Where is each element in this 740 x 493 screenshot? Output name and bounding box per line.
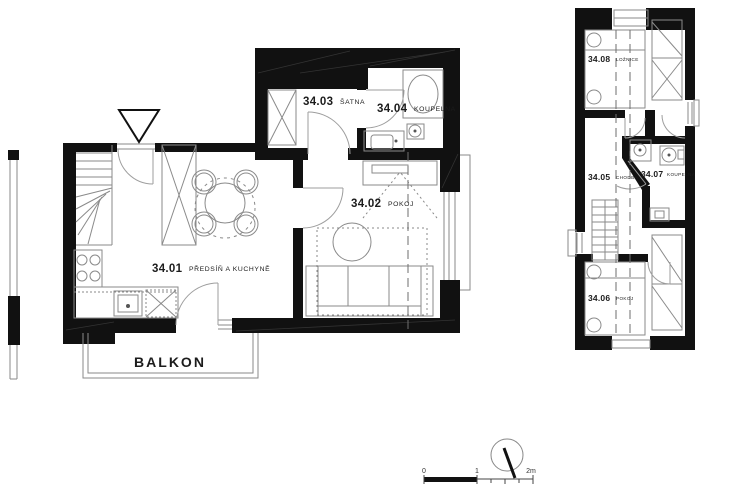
entrance-door [118, 149, 153, 184]
room-number-34-01: 34.01 [152, 263, 183, 275]
floor-plan-drawing: 34.01 PŘEDSÍŇ A KUCHYNĚ 34.02 POKOJ 34.0… [0, 0, 740, 493]
room-name-34-08: LOŽNICE [616, 55, 639, 62]
triangle-section-marker-icon [119, 110, 159, 142]
pouf [333, 223, 371, 261]
toilet-07 [650, 208, 669, 221]
room-name-34-06: POKOJ [616, 296, 634, 301]
room-number-34-03: 34.03 [303, 96, 333, 108]
room-name-34-05: CHODBA [616, 175, 639, 180]
window-left [568, 230, 576, 256]
wardrobe-pokoj [652, 235, 682, 330]
room-number-34-02: 34.02 [351, 198, 381, 210]
ground-walls [8, 48, 460, 345]
scale-tick-1: 1 [475, 468, 479, 475]
room-name-34-03: ŠATNA [340, 97, 365, 106]
niche-arc [662, 115, 685, 138]
ground-floor-plan: 34.01 PŘEDSÍŇ A KUCHYNĚ 34.02 POKOJ 34.0… [8, 48, 470, 379]
balcony-door [176, 283, 218, 325]
door-loznice [625, 118, 645, 138]
room-number-34-04: 34.04 [377, 103, 408, 115]
floor-plan-canvas: 34.01 PŘEDSÍŇ A KUCHYNĚ 34.02 POKOJ 34.0… [0, 0, 740, 493]
kitchen-counter [74, 250, 178, 318]
north-needle-icon [491, 439, 523, 478]
upper-labels: 34.05 CHODBA 34.06 POKOJ 34.07 KOUPELNA … [588, 54, 696, 303]
window-bottom [612, 340, 650, 348]
door-pokoj-06 [648, 262, 670, 284]
washbasin-07 [660, 146, 684, 165]
window-right [694, 100, 699, 126]
section-lines-upper [616, 30, 630, 338]
sofa [306, 266, 433, 316]
closet-door [308, 112, 350, 154]
balcony-label: BALKON [134, 354, 206, 370]
room-number-34-07: 34.07 [641, 169, 663, 179]
room-name-34-01: PŘEDSÍŇ A KUCHYNĚ [189, 264, 270, 273]
bed-loznice [585, 30, 645, 108]
room-number-34-08: 34.08 [588, 54, 610, 64]
wardrobe-loznice [652, 20, 682, 100]
winding-staircase [76, 145, 112, 245]
straight-staircase [592, 200, 618, 260]
upper-floor-plan: 34.05 CHODBA 34.06 POKOJ 34.07 KOUPELNA … [568, 8, 699, 350]
dining-set [192, 170, 258, 238]
livingroom-door [303, 188, 343, 228]
room-number-34-06: 34.06 [588, 293, 610, 303]
room-number-34-05: 34.05 [588, 172, 610, 182]
scale-bar: 0 1 2m [422, 468, 536, 484]
room-name-34-07: KOUPELNA [667, 172, 696, 177]
hall-wardrobe [162, 145, 196, 245]
scale-tick-0: 0 [422, 468, 426, 475]
room-name-34-02: POKOJ [388, 201, 414, 208]
closet-wardrobe [268, 90, 296, 145]
scale-tick-2m: 2m [526, 468, 536, 475]
room-name-34-04: KOUPELNA [414, 106, 456, 113]
